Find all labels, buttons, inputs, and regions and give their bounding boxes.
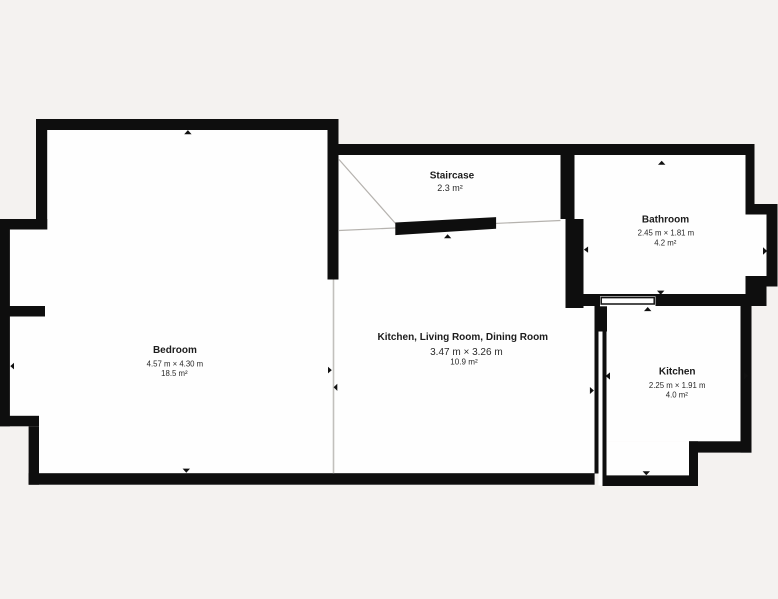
svg-text:Bathroom: Bathroom	[642, 214, 689, 225]
svg-text:Bedroom: Bedroom	[153, 345, 197, 356]
svg-text:2.45 m × 1.81 m: 2.45 m × 1.81 m	[638, 228, 695, 237]
svg-text:Kitchen: Kitchen	[659, 367, 696, 378]
svg-text:2.3 m²: 2.3 m²	[437, 183, 463, 193]
svg-text:3.47 m × 3.26 m: 3.47 m × 3.26 m	[430, 347, 503, 358]
svg-text:10.9 m²: 10.9 m²	[450, 358, 478, 367]
svg-text:4.0 m²: 4.0 m²	[666, 390, 688, 399]
svg-text:Staircase: Staircase	[430, 171, 475, 182]
svg-text:2.25 m × 1.91 m: 2.25 m × 1.91 m	[649, 381, 706, 390]
svg-text:4.2 m²: 4.2 m²	[654, 238, 676, 247]
svg-text:18.5 m²: 18.5 m²	[161, 369, 188, 378]
svg-text:Kitchen, Living Room, Dining R: Kitchen, Living Room, Dining Room	[378, 332, 549, 343]
svg-text:4.57 m × 4.30 m: 4.57 m × 4.30 m	[147, 359, 204, 368]
